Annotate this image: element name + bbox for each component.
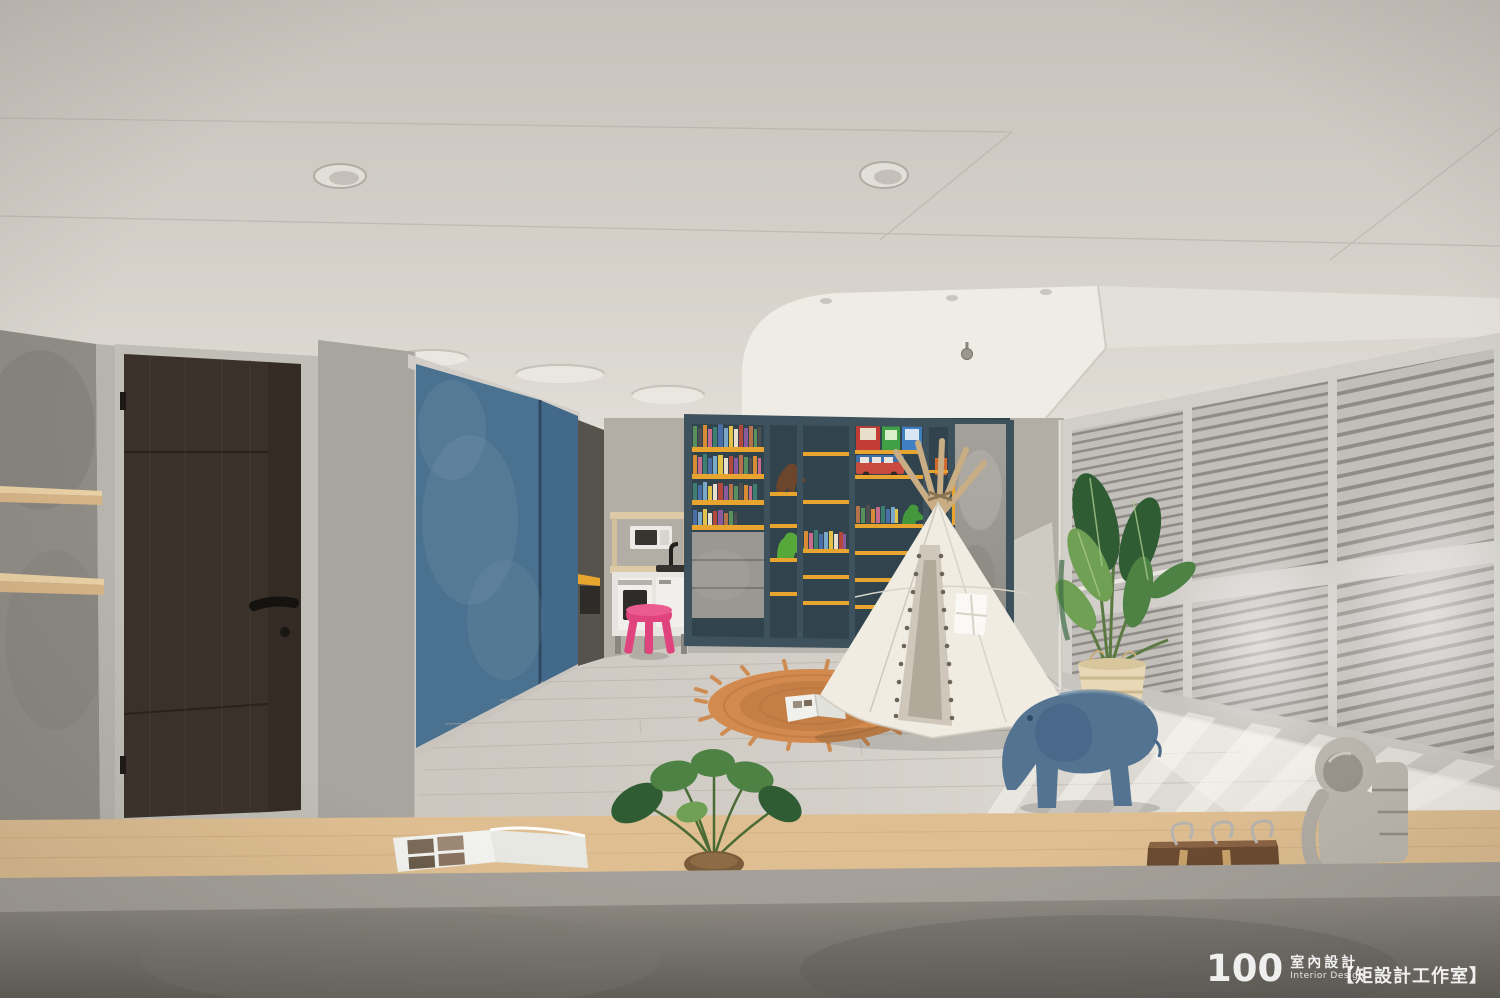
scene-svg (0, 0, 1500, 998)
playroom-photo: 100 室內設計 Interior Design 【矩設計工作室】 (0, 0, 1500, 998)
watermark-studio: 【矩設計工作室】 (1336, 962, 1488, 988)
watermark-number: 100 (1206, 950, 1283, 987)
vignette (0, 0, 1500, 998)
